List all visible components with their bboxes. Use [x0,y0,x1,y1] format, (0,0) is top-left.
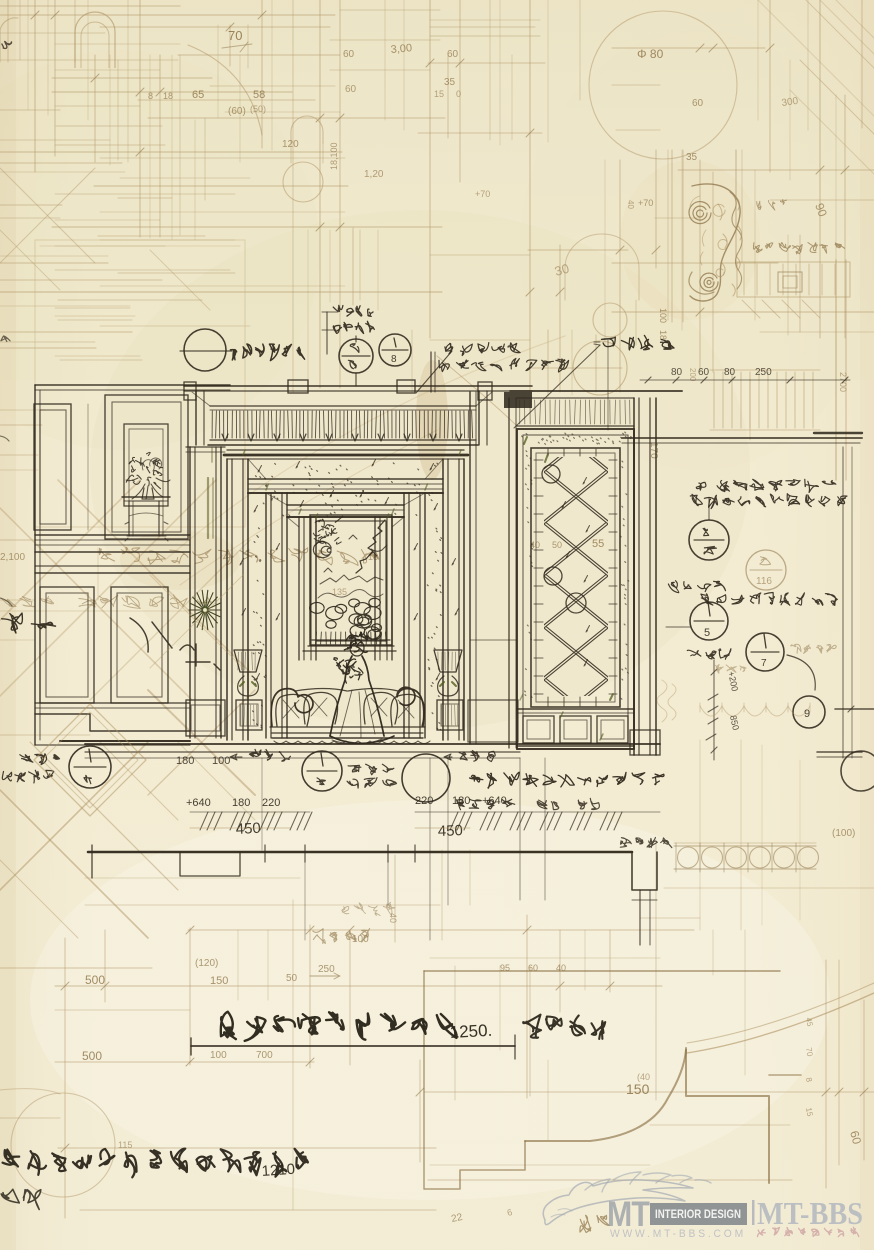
svg-text:50: 50 [552,540,562,550]
svg-text:(40: (40 [637,1072,650,1082]
svg-text:180: 180 [176,755,194,767]
svg-text:120: 120 [282,139,299,150]
svg-text:+70: +70 [475,189,490,199]
svg-text:180: 180 [232,797,250,809]
svg-text:250: 250 [755,367,772,378]
svg-text:150: 150 [210,975,228,987]
svg-text:(50): (50) [250,104,266,114]
svg-text:+640: +640 [186,797,211,809]
svg-text:1250.: 1250. [449,1021,492,1042]
svg-text:100: 100 [658,308,668,323]
svg-text:220: 220 [262,797,280,809]
svg-text:8: 8 [148,91,153,101]
svg-text:450: 450 [235,820,261,838]
svg-text:INTERIOR DESIGN: INTERIOR DESIGN [655,1209,741,1221]
svg-text:70: 70 [228,28,242,43]
svg-text:60: 60 [698,367,710,378]
svg-text:60: 60 [345,84,357,95]
svg-text:0: 0 [456,89,461,99]
svg-text:100: 100 [212,755,230,767]
svg-text:18: 18 [658,330,668,340]
svg-text:1210: 1210 [261,1161,295,1180]
svg-text:15: 15 [434,89,444,99]
svg-text:100: 100 [210,1050,227,1061]
svg-text:(60): (60) [228,106,246,117]
svg-text:58: 58 [253,89,265,101]
svg-text:60: 60 [447,49,459,60]
svg-text:Φ 80: Φ 80 [637,47,664,61]
svg-text:18,100: 18,100 [329,142,339,170]
svg-text:8: 8 [391,354,397,365]
svg-text:116: 116 [756,576,772,587]
svg-text:500: 500 [85,973,105,987]
svg-text:40: 40 [388,913,398,923]
svg-text:5: 5 [704,627,710,639]
svg-text:500: 500 [82,1049,102,1063]
svg-text:100: 100 [352,934,369,945]
svg-text:35: 35 [444,77,456,88]
svg-text:1,20: 1,20 [364,169,384,180]
svg-text:7: 7 [761,658,767,669]
svg-text:(100): (100) [832,828,855,839]
svg-text:35: 35 [686,152,698,163]
svg-text:50: 50 [286,973,298,984]
svg-text:250: 250 [318,964,335,975]
svg-text:40: 40 [626,200,635,209]
svg-text:3,00: 3,00 [390,42,412,56]
svg-text:55: 55 [592,538,604,550]
svg-text:150: 150 [626,1081,650,1097]
svg-text:450: 450 [438,822,464,840]
svg-text:(120): (120) [195,958,218,969]
svg-text:MT-BBS: MT-BBS [757,1195,863,1231]
svg-text:2,100: 2,100 [0,552,25,563]
svg-text:65: 65 [192,89,204,101]
svg-text:60: 60 [343,49,355,60]
svg-text:80: 80 [671,367,683,378]
svg-text:WWW.MT-BBS.COM: WWW.MT-BBS.COM [610,1228,746,1240]
svg-text:60: 60 [692,98,704,109]
svg-text:18: 18 [163,91,173,101]
svg-text:115: 115 [118,1140,132,1150]
svg-text:+70: +70 [638,198,653,208]
svg-text:80: 80 [724,367,736,378]
svg-text:700: 700 [256,1050,273,1061]
